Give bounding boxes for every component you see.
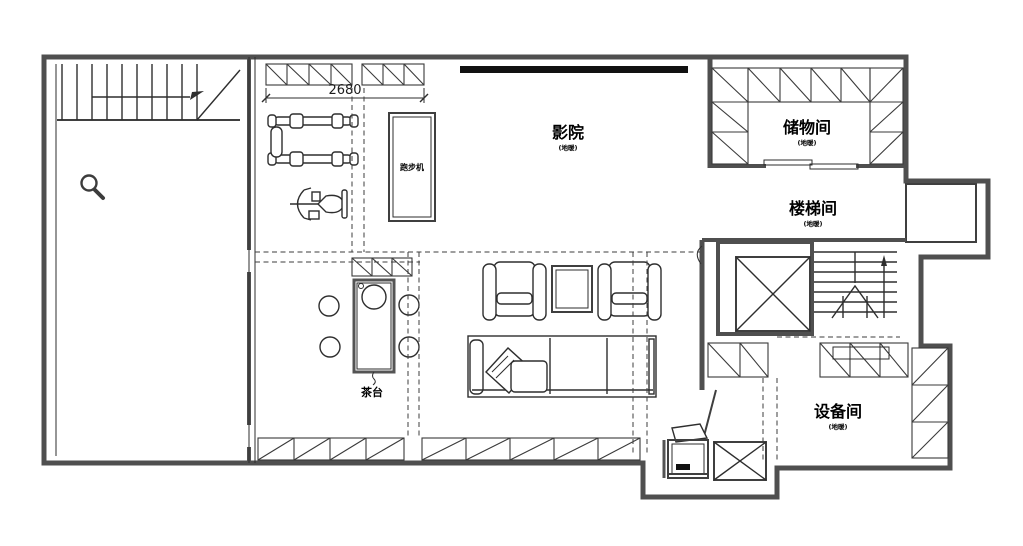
daybed-sofa bbox=[468, 336, 656, 397]
bottom-cabinet-rows bbox=[258, 438, 640, 460]
appliance-open-lid bbox=[668, 424, 708, 478]
wall-cabinet-row bbox=[266, 64, 424, 85]
tea-counter-zone: 茶台 bbox=[319, 258, 419, 399]
floor-hatch-box bbox=[714, 442, 766, 480]
storage-shelves bbox=[712, 68, 903, 164]
stair-hall-sublabel: (地暖) bbox=[804, 219, 823, 228]
recliner-armchair bbox=[598, 262, 661, 320]
floorplan-canvas: 2680 bbox=[0, 0, 1023, 546]
throw-pillow bbox=[511, 361, 547, 392]
stair-hall: 楼梯间 (地暖) bbox=[697, 199, 906, 390]
magnifier-cursor-icon bbox=[82, 176, 104, 199]
stair-hall-label: 楼梯间 bbox=[789, 199, 837, 218]
sliding-door bbox=[810, 164, 858, 169]
gym-zone: 2680 bbox=[262, 64, 435, 221]
cinema-room-label: 影院 bbox=[552, 123, 584, 142]
main-staircase bbox=[814, 252, 897, 318]
floorplan-drawing: 2680 bbox=[0, 0, 1023, 546]
storage-room: 储物间 (地暖) bbox=[708, 57, 906, 169]
counter-cabinet-hatch bbox=[352, 258, 412, 276]
sliding-door bbox=[764, 160, 812, 165]
spin-bike bbox=[290, 188, 347, 220]
weight-bench bbox=[268, 114, 358, 166]
storage-room-sublabel: (地暖) bbox=[798, 138, 817, 147]
treadmill: 跑步机 bbox=[389, 113, 435, 221]
window-well bbox=[906, 184, 976, 242]
terrace-staircase bbox=[57, 64, 240, 120]
stool bbox=[319, 296, 339, 316]
bottom-fixtures bbox=[664, 424, 766, 480]
equipment-room: 设备间 (地暖) bbox=[703, 343, 948, 458]
left-terrace bbox=[56, 64, 240, 456]
side-table bbox=[552, 266, 592, 312]
equipment-shelves-top bbox=[708, 343, 908, 377]
treadmill-label: 跑步机 bbox=[400, 162, 424, 172]
stool bbox=[320, 337, 340, 357]
elevator-shaft bbox=[718, 242, 812, 334]
cinema-room-sublabel: (地暖) bbox=[559, 143, 578, 152]
dimension-text: 2680 bbox=[328, 83, 361, 98]
tea-counter: 茶台 bbox=[354, 280, 394, 399]
recliner-armchair bbox=[483, 262, 546, 320]
equipment-room-label: 设备间 bbox=[814, 402, 862, 421]
storage-room-label: 储物间 bbox=[782, 118, 831, 137]
tea-counter-label: 茶台 bbox=[360, 385, 383, 399]
label-leader-line bbox=[373, 372, 376, 385]
equipment-room-sublabel: (地暖) bbox=[829, 422, 848, 431]
cinema-room: 影院 (地暖) bbox=[460, 66, 688, 397]
faucet bbox=[359, 284, 364, 289]
sink-basin bbox=[362, 285, 386, 309]
stool bbox=[399, 337, 419, 357]
equipment-shelves-right bbox=[912, 348, 948, 458]
dimension-2680: 2680 bbox=[262, 83, 428, 103]
projection-screen bbox=[460, 66, 688, 73]
stool bbox=[399, 295, 419, 315]
